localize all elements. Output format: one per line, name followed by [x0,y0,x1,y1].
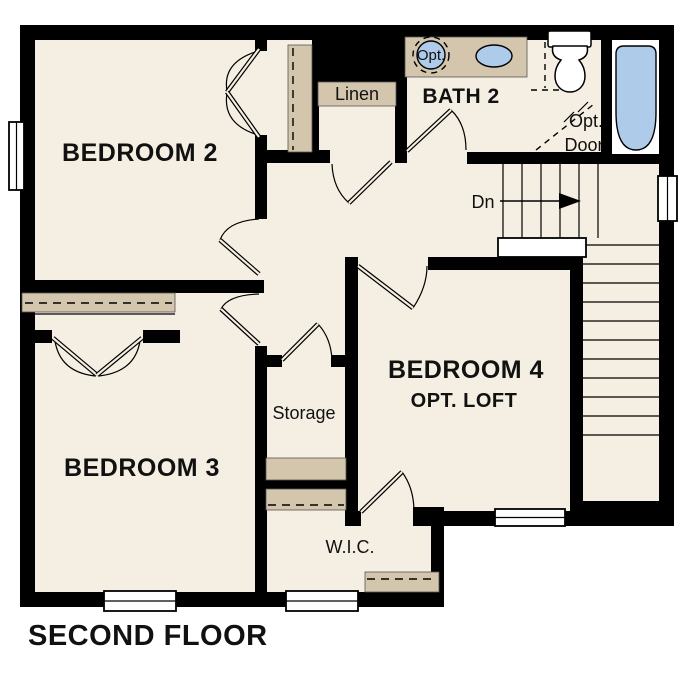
storage-shelf [266,458,346,480]
floor-plan-page: BEDROOM 2 BATH 2 Linen Opt. Opt. Door Dn… [0,0,687,687]
optional-door-label-line1: Opt. [569,111,603,131]
bedroom4-label: BEDROOM 4 [388,356,544,384]
storage-label: Storage [272,403,335,423]
toilet-bowl [552,46,587,92]
optional-door-label-line2: Door [564,135,603,155]
wall-br4-top [428,257,583,270]
bedroom2-closet-rod-shelf [288,45,312,152]
toilet-tank [548,31,591,47]
bedroom2-label: BEDROOM 2 [62,139,218,167]
wall-br3-closet-stub-right [143,330,180,343]
wall-br3-closet-stub-left [20,330,52,343]
wall-br2-right-top [255,25,267,51]
bathtub [616,46,656,150]
wall-storage-wic-divider [264,480,347,489]
wic-label: W.I.C. [326,537,375,557]
wall-storage-top-a [255,355,282,367]
wic-shelf-south [365,572,439,592]
wall-block-top-center [312,25,397,82]
wall-stair-bottom [583,501,674,526]
wall-wic-right [431,511,444,607]
page-title: SECOND FLOOR [28,620,268,652]
wall-hall-west [255,346,267,592]
bedroom4-sublabel: OPT. LOFT [411,390,518,412]
window-bedroom4-bottom [495,509,565,526]
stair-landing [498,238,586,257]
wall-br4-left [345,257,358,513]
optional-sink-label: Opt. [417,47,445,64]
bath2-label: BATH 2 [422,85,499,108]
linen-label: Linen [335,84,379,104]
window-wic-bottom [286,591,358,611]
wall-right [659,25,674,526]
wall-bottom-left [20,592,444,607]
wall-wic-top-right [413,507,444,519]
wic-shelf-north [266,489,346,510]
sink [476,45,512,67]
wall-left [20,25,35,607]
wall-br2-right-mid [255,135,267,219]
wall-br2-bottom [20,280,264,293]
stairs-down-label: Dn [471,192,494,212]
floor-plan-drawing: BEDROOM 2 BATH 2 Linen Opt. Opt. Door Dn… [0,0,687,687]
window-stair-right [658,176,677,221]
wall-br4-bottom-stub [345,511,361,526]
window-bedroom3-bottom [104,591,176,611]
bedroom3-label: BEDROOM 3 [64,454,220,482]
window-bedroom2-left [9,122,24,190]
wall-br4-right [570,270,583,513]
wall-storage-top-b [331,355,358,367]
